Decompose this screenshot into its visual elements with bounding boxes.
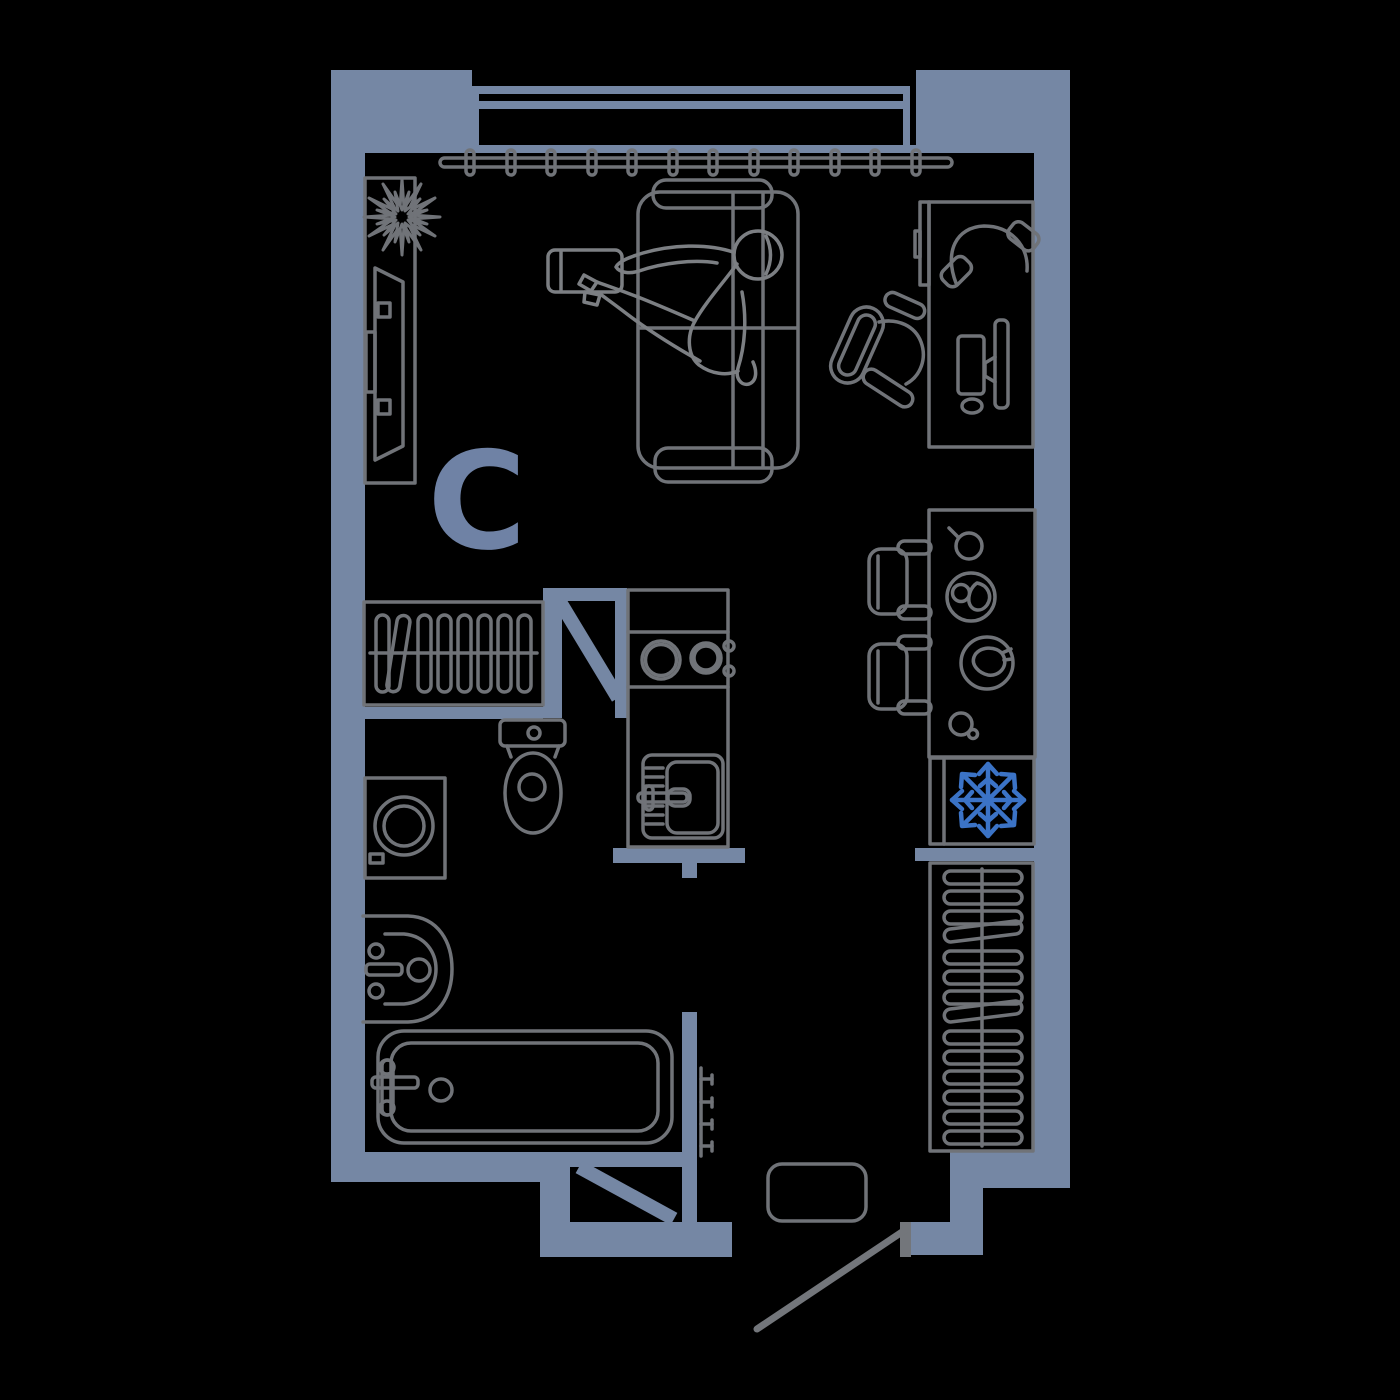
keyboard-icon xyxy=(958,336,984,394)
towel-radiator-icon xyxy=(701,1068,712,1156)
floor-plan: C xyxy=(0,0,1400,1400)
wall-entry-column xyxy=(950,1152,983,1255)
refrigerator xyxy=(930,758,1034,844)
stove-burners-icon xyxy=(642,641,734,679)
window xyxy=(472,86,916,153)
floorplan-canvas: C xyxy=(0,0,1400,1400)
kitchen-counter xyxy=(628,590,734,847)
wall-hall-vertical xyxy=(682,1012,697,1222)
wall-fridge-bottom xyxy=(915,848,1034,861)
unit-label: C xyxy=(427,423,526,580)
entry-door-swing xyxy=(757,1230,905,1329)
washing-machine-icon xyxy=(365,778,445,878)
wall-vestibule-bottom xyxy=(545,1222,732,1257)
person-lying xyxy=(579,231,782,384)
entry-door xyxy=(757,1222,911,1329)
headphones-icon xyxy=(938,219,1041,290)
monitor-icon xyxy=(985,320,1008,408)
wardrobe-left xyxy=(364,602,543,705)
bathroom-door-leaf xyxy=(579,1167,674,1219)
glass-icon xyxy=(950,713,978,739)
kitchen-sink-icon xyxy=(638,755,723,838)
breakfast-plate-icon xyxy=(947,573,995,621)
office-chair xyxy=(825,290,927,410)
dining-chair xyxy=(869,541,931,619)
wardrobe-right xyxy=(930,863,1033,1151)
toilet-icon xyxy=(500,720,565,833)
wc-door-leaf xyxy=(560,602,618,698)
curtain-rail xyxy=(440,150,952,175)
wall-tv-icon xyxy=(366,268,403,460)
wall-left xyxy=(331,70,365,1182)
plant-icon xyxy=(364,179,440,255)
wall-bathroom-bottom xyxy=(331,1152,570,1182)
snowflake-icon xyxy=(952,764,1024,836)
wash-basin-icon xyxy=(363,916,452,1022)
bathtub-icon xyxy=(372,1031,672,1143)
wall-kitchen-bottom xyxy=(613,848,745,863)
wall-kitchen-stub xyxy=(682,863,697,878)
cup-icon xyxy=(949,528,982,559)
dining-chair xyxy=(869,636,931,714)
wall-mid-horizontal xyxy=(331,707,543,719)
mouse-icon xyxy=(962,399,982,413)
doormat-icon xyxy=(768,1164,866,1221)
dining-table xyxy=(929,510,1035,757)
sofa-bed xyxy=(638,180,798,482)
dinner-plate-icon xyxy=(961,637,1013,689)
wc-door xyxy=(543,588,627,718)
